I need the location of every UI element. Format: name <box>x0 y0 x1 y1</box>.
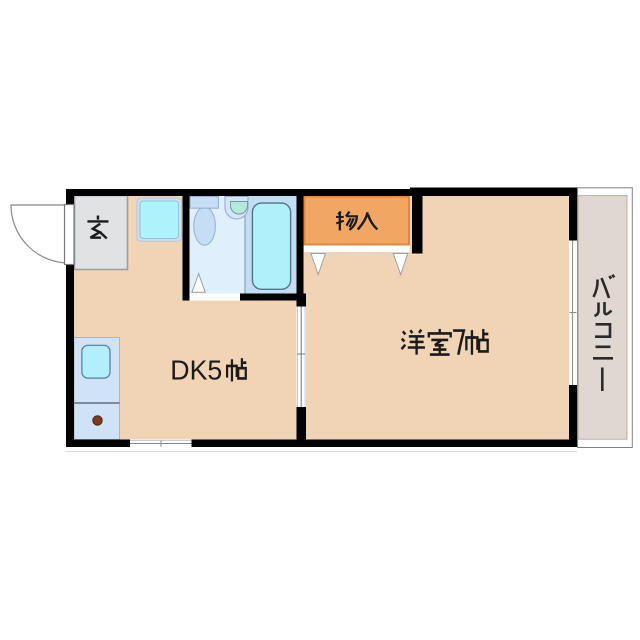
svg-text:DK5: DK5 <box>170 355 222 386</box>
